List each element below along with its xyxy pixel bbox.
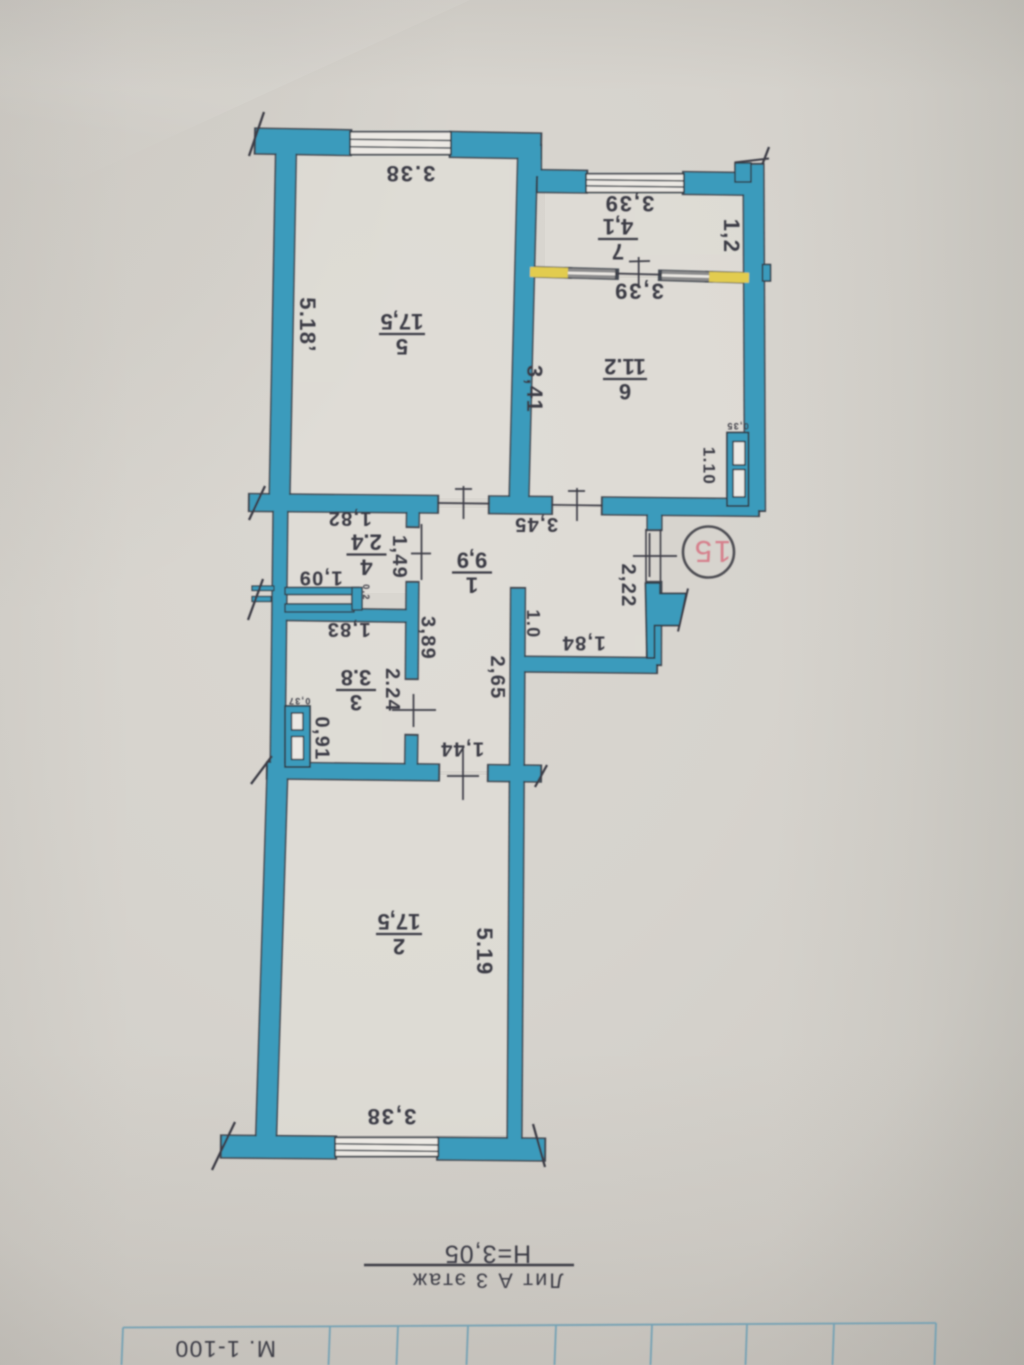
svg-text:Лит А 3 этаж: Лит А 3 этаж [410, 1269, 563, 1293]
svg-text:3.38: 3.38 [385, 161, 436, 186]
svg-text:0,37: 0,37 [288, 696, 311, 706]
svg-text:1,84: 1,84 [561, 632, 605, 654]
svg-text:17,5: 17,5 [381, 309, 424, 334]
svg-text:9,9: 9,9 [457, 548, 488, 573]
svg-text:5.18’: 5.18’ [295, 297, 320, 352]
svg-text:1.10: 1.10 [700, 447, 719, 485]
svg-text:1,09: 1,09 [298, 567, 342, 589]
svg-text:5: 5 [396, 334, 408, 359]
svg-text:1,44: 1,44 [440, 738, 484, 760]
svg-text:11.2: 11.2 [604, 354, 646, 379]
svg-text:1: 1 [466, 573, 478, 598]
svg-text:0,91: 0,91 [311, 716, 333, 760]
svg-text:3,45: 3,45 [514, 513, 558, 535]
svg-text:3,89: 3,89 [417, 616, 439, 660]
svg-text:0,35: 0,35 [726, 421, 749, 431]
svg-text:4,1: 4,1 [603, 214, 634, 239]
svg-text:5.19: 5.19 [472, 927, 497, 975]
svg-text:3: 3 [350, 690, 362, 715]
svg-text:4: 4 [360, 555, 373, 580]
svg-text:1,83: 1,83 [326, 618, 370, 640]
svg-text:3,38: 3,38 [366, 1104, 417, 1129]
svg-text:6: 6 [619, 379, 631, 404]
svg-text:3,39: 3,39 [613, 279, 664, 304]
svg-text:1,82: 1,82 [327, 507, 371, 529]
svg-text:2: 2 [393, 934, 405, 959]
svg-text:3,39: 3,39 [604, 191, 655, 216]
svg-text:0,2: 0,2 [361, 584, 371, 600]
svg-text:15: 15 [693, 534, 731, 569]
svg-text:1,49: 1,49 [388, 535, 410, 579]
svg-text:17,5: 17,5 [378, 909, 421, 934]
svg-text:2.24: 2.24 [381, 668, 403, 712]
svg-text:1.0: 1.0 [523, 610, 543, 639]
svg-text:Н=3,05: Н=3,05 [444, 1240, 531, 1268]
svg-text:2.4: 2.4 [350, 530, 381, 555]
svg-text:1,2: 1,2 [719, 219, 744, 253]
svg-text:2,22: 2,22 [617, 563, 639, 607]
svg-text:3.8: 3.8 [341, 665, 372, 690]
svg-text:М. 1-100: М. 1-100 [174, 1336, 276, 1362]
svg-text:7: 7 [612, 239, 624, 264]
svg-text:3,41: 3,41 [522, 365, 547, 413]
svg-text:2,65: 2,65 [486, 655, 508, 699]
